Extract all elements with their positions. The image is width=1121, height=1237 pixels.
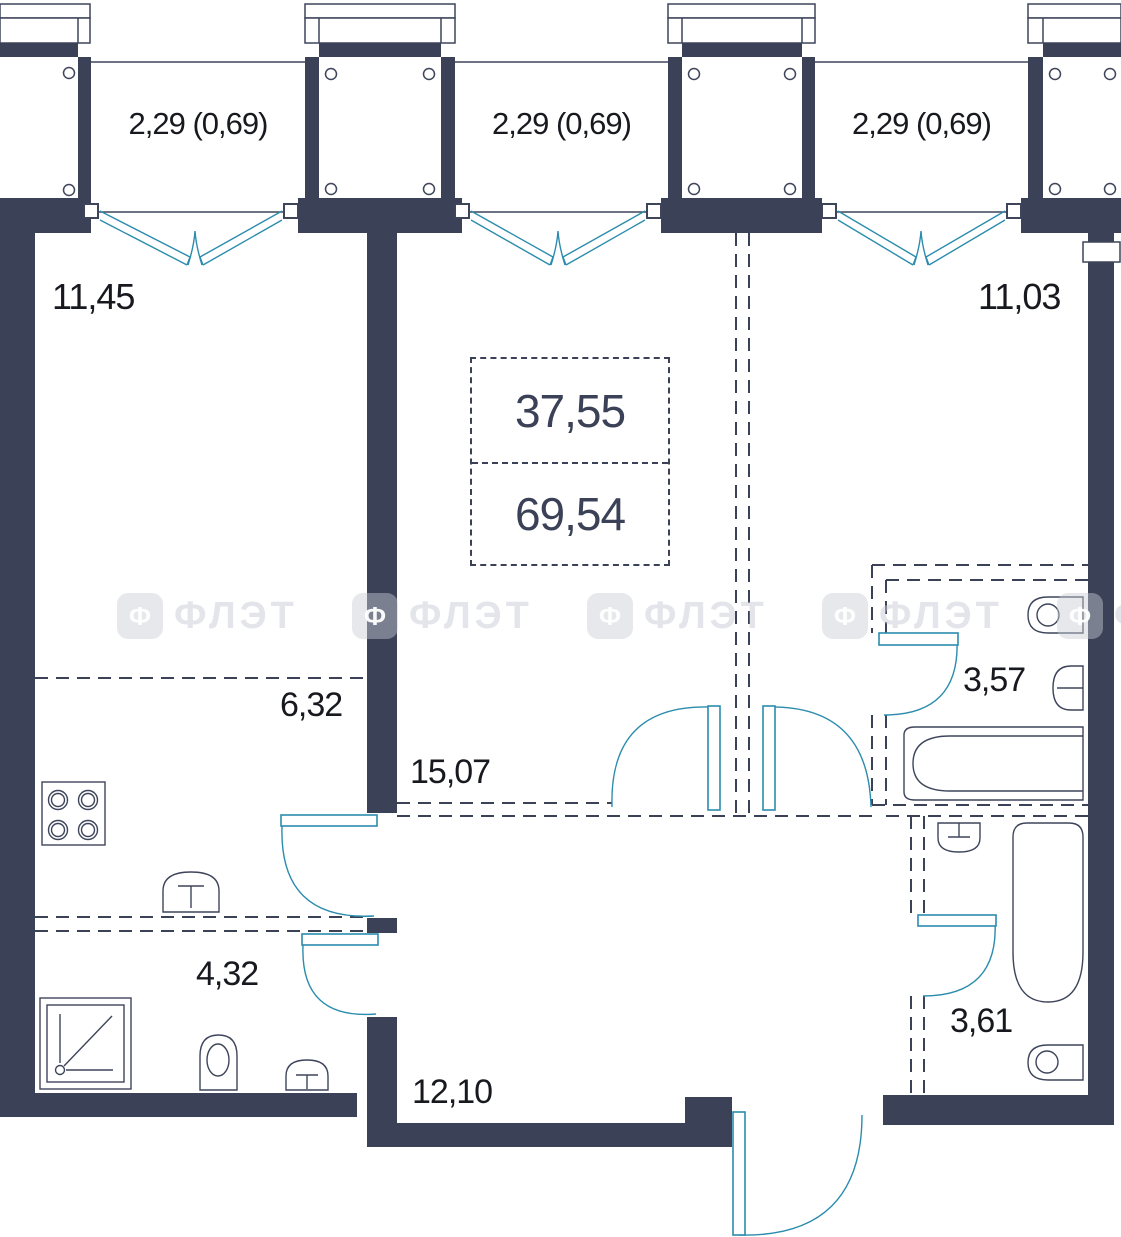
- kitchen-sink-icon: [163, 872, 219, 912]
- stove-icon: [42, 782, 105, 845]
- total-area-value: 69,54: [472, 464, 668, 564]
- vent-shaft-box: [1083, 242, 1120, 262]
- area-label-kitchen: 6,32: [280, 686, 342, 725]
- door-kitchen: [281, 815, 377, 916]
- area-label-living-right: 11,03: [978, 276, 1060, 318]
- area-label-bathroom: 3,57: [963, 661, 1025, 700]
- area-label-living-left: 11,45: [52, 276, 134, 318]
- double-door-living-right: [612, 706, 871, 810]
- bathtub-icon: [904, 727, 1083, 800]
- balcony-area-label: 2,29 (0,69): [91, 106, 305, 142]
- toilet-icon: [200, 1035, 237, 1090]
- area-summary-box: 37,55 69,54: [470, 357, 670, 566]
- door-sanitary-left: [302, 934, 378, 1014]
- shower-tray-icon: [40, 998, 131, 1089]
- balcony-area-label: 2,29 (0,69): [455, 106, 668, 142]
- floor-plan: Ф ФЛЭТ Ф ФЛЭТ Ф ФЛЭТ Ф ФЛЭТ Ф ФЛЭТ 2,29 …: [0, 0, 1121, 1237]
- balcony-area-label: 2,29 (0,69): [815, 106, 1028, 142]
- window-hinge-blocks: [84, 204, 1021, 218]
- balcony-window-symbol: [100, 211, 1005, 265]
- wall-sink-icon: [1053, 666, 1083, 710]
- small-sink-icon: [286, 1060, 328, 1090]
- floor-plan-drawing: [0, 0, 1121, 1237]
- area-label-wc: 3,61: [950, 1002, 1012, 1041]
- walls: [0, 43, 1121, 1147]
- living-area-value: 37,55: [472, 359, 668, 462]
- door-bathroom: [879, 633, 958, 715]
- area-label-hallway: 15,07: [410, 753, 490, 792]
- small-sink-icon: [938, 823, 980, 852]
- shower-cabin-icon: [1013, 823, 1083, 1002]
- pillar-caps: [0, 4, 1121, 43]
- toilet-icon: [1028, 597, 1083, 633]
- entrance-door: [733, 1112, 862, 1235]
- area-label-sanitary-left: 4,32: [196, 955, 258, 994]
- toilet-icon: [1028, 1045, 1083, 1080]
- area-label-hallway-lower: 12,10: [412, 1073, 492, 1112]
- door-wc: [918, 915, 996, 996]
